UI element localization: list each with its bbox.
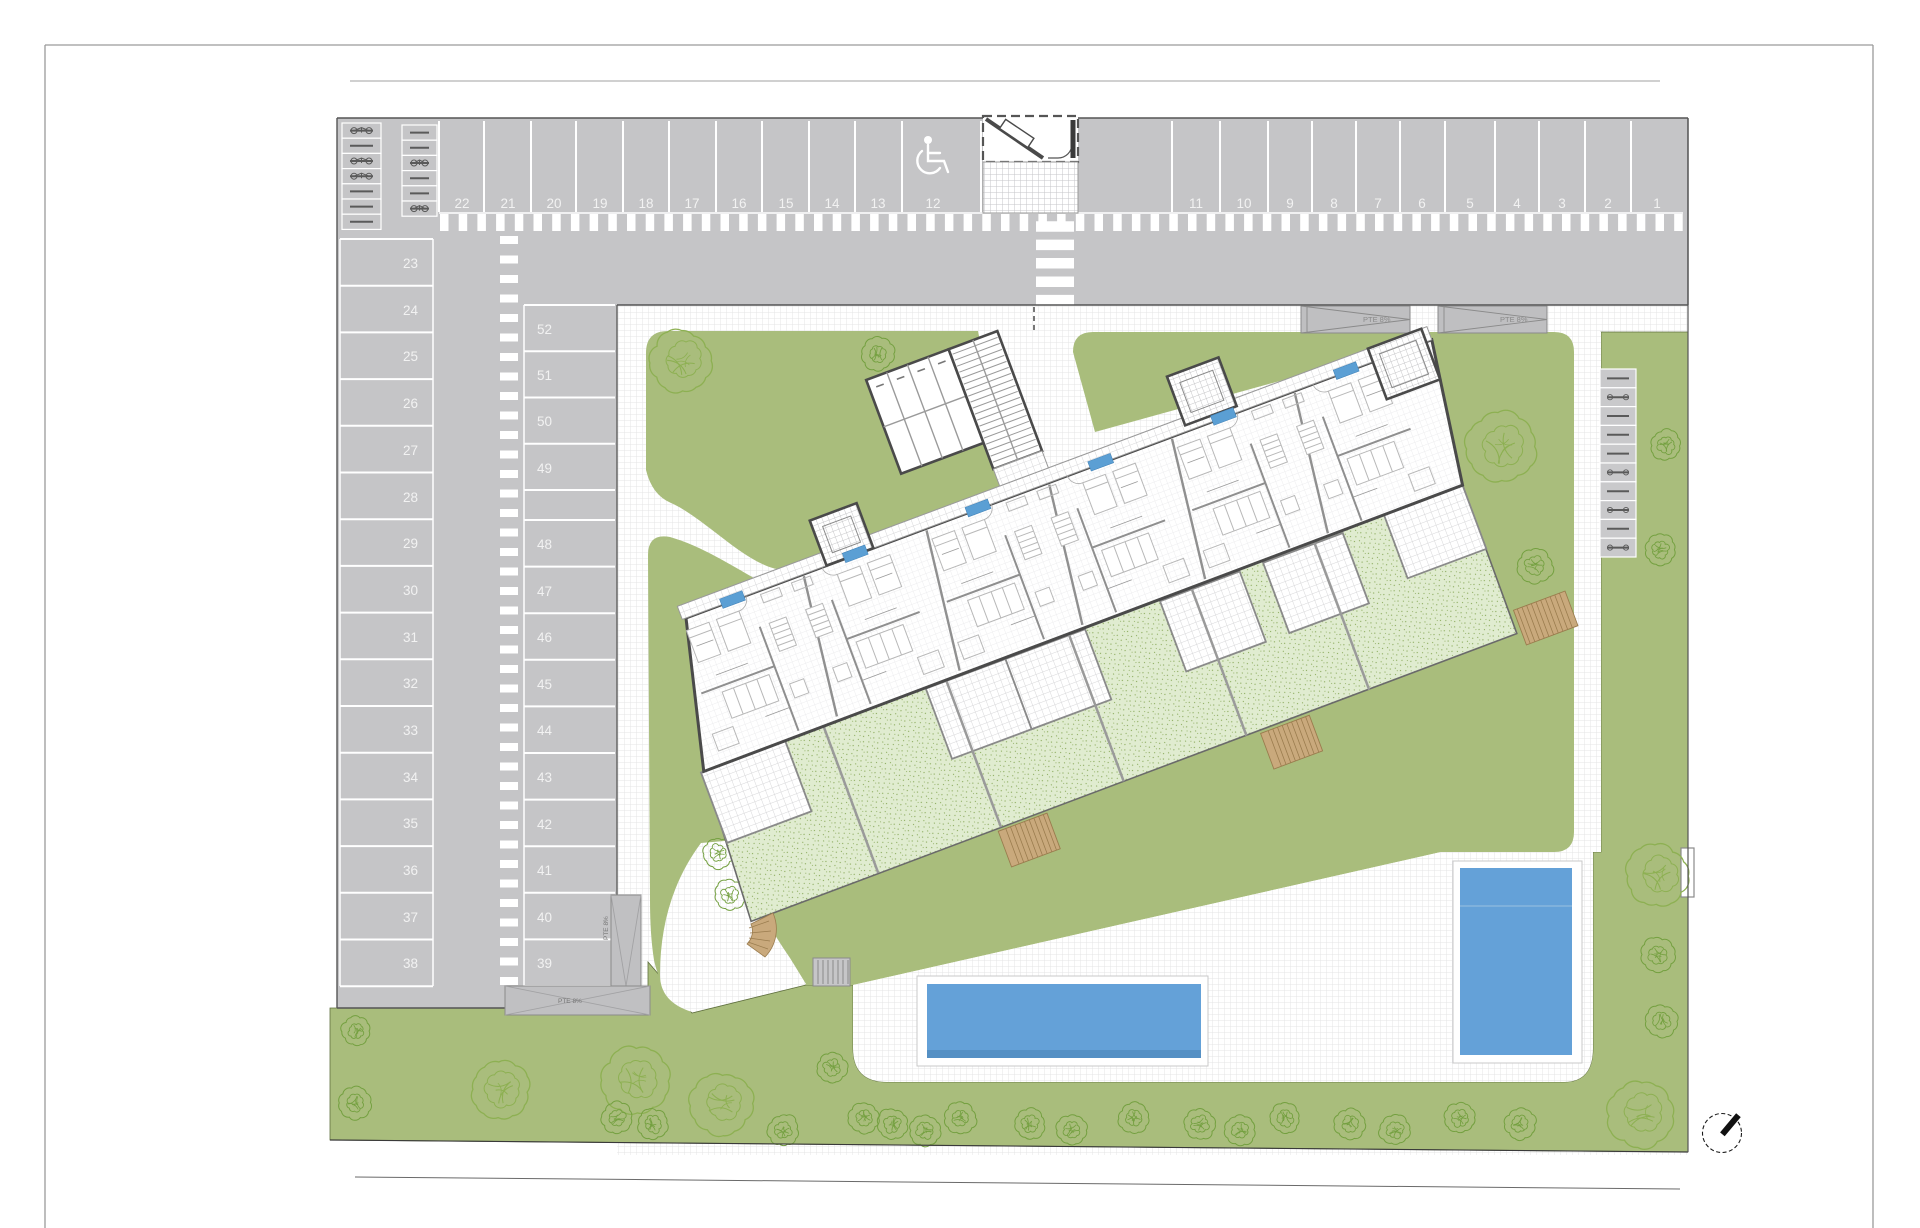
svg-text:29: 29 <box>403 536 418 551</box>
svg-text:47: 47 <box>537 584 552 599</box>
svg-text:36: 36 <box>403 863 418 878</box>
svg-text:6: 6 <box>1418 196 1426 211</box>
svg-text:1: 1 <box>1653 196 1661 211</box>
svg-text:2: 2 <box>1604 196 1612 211</box>
svg-text:30: 30 <box>403 583 418 598</box>
svg-text:11: 11 <box>1189 196 1203 211</box>
svg-text:16: 16 <box>731 196 746 211</box>
svg-text:18: 18 <box>638 196 653 211</box>
svg-text:24: 24 <box>403 303 419 318</box>
svg-text:15: 15 <box>778 196 793 211</box>
svg-text:19: 19 <box>592 196 607 211</box>
svg-text:40: 40 <box>537 910 552 925</box>
svg-text:44: 44 <box>537 723 553 738</box>
svg-text:37: 37 <box>403 910 418 925</box>
svg-text:8: 8 <box>1330 196 1338 211</box>
svg-text:50: 50 <box>537 414 552 429</box>
svg-text:21: 21 <box>500 196 515 211</box>
svg-text:31: 31 <box>403 630 418 645</box>
svg-text:39: 39 <box>537 956 552 971</box>
svg-text:10: 10 <box>1236 196 1251 211</box>
svg-text:13: 13 <box>870 196 885 211</box>
svg-text:38: 38 <box>403 956 418 971</box>
svg-text:PTE 8%: PTE 8% <box>1363 315 1391 324</box>
svg-text:9: 9 <box>1286 196 1294 211</box>
svg-text:34: 34 <box>403 770 419 785</box>
svg-text:35: 35 <box>403 816 418 831</box>
svg-text:51: 51 <box>537 368 552 383</box>
svg-text:27: 27 <box>403 443 418 458</box>
svg-text:26: 26 <box>403 396 418 411</box>
svg-text:PTE 8%: PTE 8% <box>603 916 610 940</box>
svg-text:PTE 8%: PTE 8% <box>558 998 582 1005</box>
svg-text:25: 25 <box>403 349 418 364</box>
svg-text:12: 12 <box>925 196 940 211</box>
svg-text:42: 42 <box>537 817 552 832</box>
svg-text:41: 41 <box>537 863 552 878</box>
svg-text:48: 48 <box>537 537 552 552</box>
svg-text:52: 52 <box>537 322 552 337</box>
svg-text:7: 7 <box>1374 196 1382 211</box>
svg-text:23: 23 <box>403 256 418 271</box>
svg-text:28: 28 <box>403 490 418 505</box>
svg-text:46: 46 <box>537 630 552 645</box>
svg-text:5: 5 <box>1466 196 1474 211</box>
svg-text:20: 20 <box>546 196 561 211</box>
svg-text:22: 22 <box>454 196 469 211</box>
svg-text:49: 49 <box>537 461 552 476</box>
svg-text:3: 3 <box>1558 196 1566 211</box>
svg-text:4: 4 <box>1513 196 1521 211</box>
svg-text:45: 45 <box>537 677 552 692</box>
svg-text:17: 17 <box>684 196 699 211</box>
svg-text:33: 33 <box>403 723 418 738</box>
svg-text:PTE 8%: PTE 8% <box>1500 315 1528 324</box>
svg-text:32: 32 <box>403 676 418 691</box>
svg-text:43: 43 <box>537 770 552 785</box>
svg-text:14: 14 <box>824 196 840 211</box>
